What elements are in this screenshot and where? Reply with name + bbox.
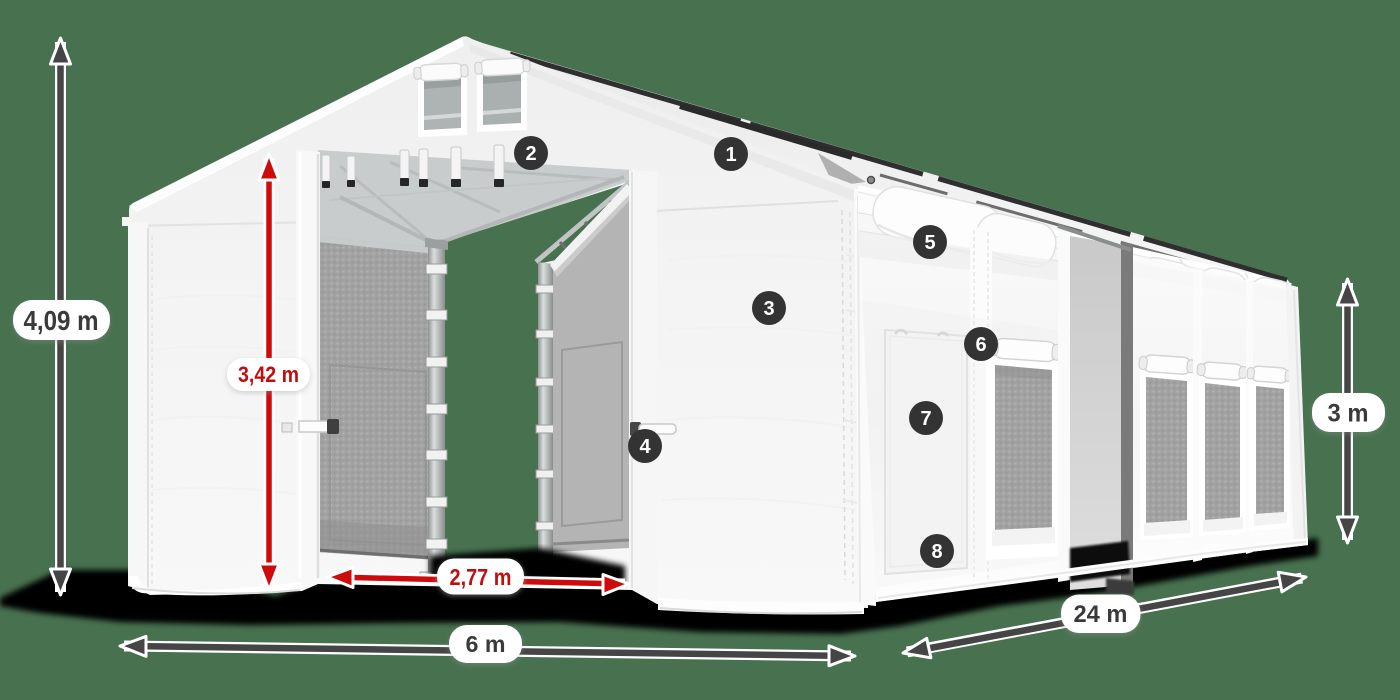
svg-text:4,09 m: 4,09 m xyxy=(24,305,99,336)
svg-text:6 m: 6 m xyxy=(466,631,506,657)
svg-text:4: 4 xyxy=(639,436,651,458)
svg-text:3: 3 xyxy=(763,298,774,320)
svg-text:8: 8 xyxy=(931,541,942,563)
svg-text:6: 6 xyxy=(975,334,986,356)
svg-text:2,77 m: 2,77 m xyxy=(450,564,512,590)
svg-text:1: 1 xyxy=(725,144,736,166)
svg-text:3 m: 3 m xyxy=(1328,400,1369,428)
svg-text:7: 7 xyxy=(920,408,931,430)
svg-text:5: 5 xyxy=(924,232,935,254)
svg-text:2: 2 xyxy=(525,143,536,165)
svg-text:24 m: 24 m xyxy=(1074,601,1128,628)
svg-text:3,42 m: 3,42 m xyxy=(238,362,299,387)
